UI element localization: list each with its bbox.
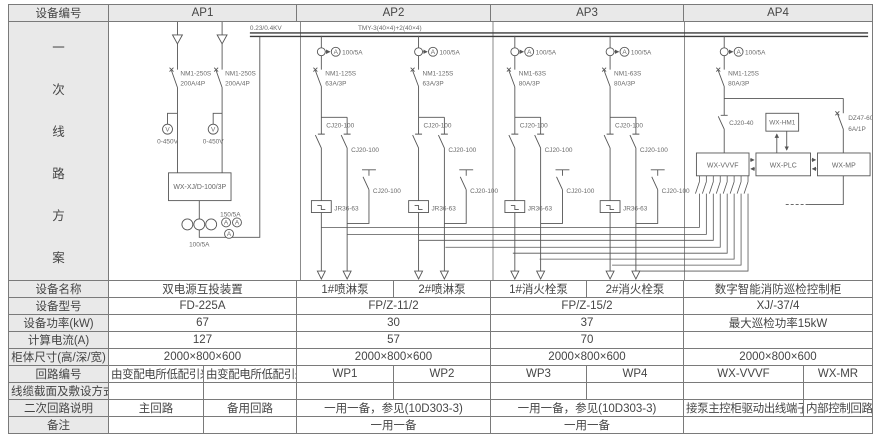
svg-text:0-450V: 0-450V: [203, 139, 224, 146]
scheme-title-vertical: 一 次 线 路 方 案: [11, 22, 106, 280]
svg-text:A: A: [736, 49, 741, 56]
table-cell: [684, 417, 873, 434]
vvvf-output-line: [347, 176, 706, 235]
table-cell: 备用回路: [204, 400, 297, 417]
svg-text:CJ20-100: CJ20-100: [326, 123, 354, 130]
busbar-voltage-label: 0.23/0.4KV: [250, 25, 283, 32]
table-cell: 2000×800×600: [297, 349, 491, 366]
row-label-current: 计算电流(A): [9, 332, 109, 349]
pump-branches: A 100/5A NM1-125S 63A/3P CJ20-100 CJ20-1…: [311, 36, 690, 279]
svg-text:100/5A: 100/5A: [439, 49, 460, 56]
table-row: 二次回路说明 主回路 备用回路 一用一备，参见(10D303-3) 一用一备，参…: [9, 400, 873, 417]
table-cell: XJ/-37/4: [684, 298, 873, 315]
svg-text:NM1-63S: NM1-63S: [519, 71, 546, 78]
table-cell: [587, 383, 684, 400]
svg-text:V: V: [165, 127, 170, 134]
ct-icon: [415, 48, 423, 56]
svg-text:100/5A: 100/5A: [745, 49, 766, 56]
svg-text:80A/3P: 80A/3P: [519, 81, 540, 88]
vvvf-output-line: [321, 176, 699, 228]
table-cell: 1#喷淋泵: [297, 281, 394, 298]
svg-text:NM1-250S: NM1-250S: [180, 71, 211, 78]
table-row: 设备名称 双电源互投装置 1#喷淋泵 2#喷淋泵 1#消火栓泵 2#消火栓泵 数…: [9, 281, 873, 298]
table-cell: WP2: [394, 366, 491, 383]
table-cell: 127: [109, 332, 297, 349]
svg-text:200A/4P: 200A/4P: [180, 81, 205, 88]
svg-text:CJ20-100: CJ20-100: [351, 147, 379, 154]
one-line-diagram: 0.23/0.4KV TMY-3(40×4)+2(40×4) NM1-250S …: [111, 22, 873, 280]
table-cell: 一用一备: [297, 417, 491, 434]
ap4-circuit: A 100/5A NM1-125S 80A/3P CJ20-40 DZ47-60…: [696, 36, 872, 205]
table-cell: FP/Z-15/2: [491, 298, 684, 315]
pump-branch: A 100/5A NM1-125S 63A/3P CJ20-100 CJ20-1…: [311, 36, 401, 279]
table-row: 备注 一用一备 一用一备: [9, 417, 873, 434]
motor-arrow-icon: [415, 271, 423, 279]
svg-text:NM1-125S: NM1-125S: [728, 71, 759, 78]
table-cell: 接泵主控柜驱动出线端子: [684, 400, 804, 417]
table-cell: 一用一备，参见(10D303-3): [297, 400, 491, 417]
table-row: 设备功率(kW) 67 30 37 最大巡检功率15kW: [9, 315, 873, 332]
svg-text:CJ20-100: CJ20-100: [448, 147, 476, 154]
svg-text:CJ20-100: CJ20-100: [470, 188, 498, 195]
svg-text:WX-PLC: WX-PLC: [770, 162, 797, 169]
table-cell: WP4: [587, 366, 684, 383]
svg-text:DZ47-60: DZ47-60: [848, 115, 872, 122]
table-cell: 37: [491, 315, 684, 332]
svg-text:WX-VVVF: WX-VVVF: [707, 162, 739, 169]
vvvf-output-line: [419, 176, 714, 241]
table-cell: 57: [297, 332, 491, 349]
svg-text:WX-MP: WX-MP: [832, 162, 856, 169]
svg-text:CJ20-100: CJ20-100: [545, 147, 573, 154]
svg-text:JR36-63: JR36-63: [623, 206, 648, 213]
table-row: 设备型号 FD-225A FP/Z-11/2 FP/Z-15/2 XJ/-37/…: [9, 298, 873, 315]
svg-text:63A/3P: 63A/3P: [325, 81, 346, 88]
svg-text:NM1-63S: NM1-63S: [614, 71, 641, 78]
table-cell: WX-VVVF: [684, 366, 804, 383]
svg-text:A: A: [224, 220, 229, 227]
table-cell: 由变配电所低配引来: [109, 366, 204, 383]
table-cell: [109, 417, 204, 434]
svg-text:100/5A: 100/5A: [189, 241, 210, 248]
pump-branch: A 100/5A NM1-63S 80A/3P CJ20-100 CJ20-10…: [600, 36, 690, 279]
motor-arrow-icon: [440, 271, 448, 279]
table-cell: 2#喷淋泵: [394, 281, 491, 298]
svg-text:0-450V: 0-450V: [157, 139, 178, 146]
table-cell: [684, 383, 804, 400]
table-cell: [804, 383, 873, 400]
column-header-ap4: AP4: [684, 5, 873, 22]
row-label-cable-section: 线缆截面及敷设方式: [9, 383, 109, 400]
svg-text:80A/3P: 80A/3P: [614, 81, 635, 88]
svg-text:CJ20-100: CJ20-100: [640, 147, 668, 154]
table-row: 计算电流(A) 127 57 70: [9, 332, 873, 349]
ap1-circuit: NM1-250S 200A/4P NM1-250S 200A/4P V 0-45…: [157, 22, 260, 248]
table-cell: 一用一备，参见(10D303-3): [491, 400, 684, 417]
svg-text:80A/3P: 80A/3P: [728, 81, 749, 88]
table-cell: 2#消火栓泵: [587, 281, 684, 298]
row-label-power: 设备功率(kW): [9, 315, 109, 332]
table-cell: [109, 383, 204, 400]
svg-text:NM1-250S: NM1-250S: [225, 71, 256, 78]
ct-icon: [194, 219, 205, 230]
motor-arrow-icon: [537, 271, 545, 279]
svg-text:NM1-125S: NM1-125S: [325, 71, 356, 78]
table-cell: 双电源互投装置: [109, 281, 297, 298]
busbar-type-label: TMY-3(40×4)+2(40×4): [358, 25, 422, 32]
row-label-cabinet-size: 柜体尺寸(高/深/宽): [9, 349, 109, 366]
table-cell: 最大巡检功率15kW: [684, 315, 873, 332]
busbar: 0.23/0.4KV TMY-3(40×4)+2(40×4): [250, 25, 868, 36]
svg-text:200A/4P: 200A/4P: [225, 81, 250, 88]
table-cell: 2000×800×600: [109, 349, 297, 366]
table-row: 线缆截面及敷设方式: [9, 383, 873, 400]
motor-arrow-icon: [511, 271, 519, 279]
table-cell: 内部控制回路: [804, 400, 873, 417]
svg-text:JR36-63: JR36-63: [431, 206, 456, 213]
svg-text:CJ20-100: CJ20-100: [615, 123, 643, 130]
svg-text:CJ20-100: CJ20-100: [424, 123, 452, 130]
row-label-device-name: 设备名称: [9, 281, 109, 298]
table-cell: 1#消火栓泵: [491, 281, 587, 298]
ct-icon: [606, 48, 614, 56]
svg-text:A: A: [334, 49, 339, 56]
svg-text:63A/3P: 63A/3P: [423, 81, 444, 88]
svg-text:A: A: [431, 49, 436, 56]
table-cell: [684, 332, 873, 349]
table-cell: 67: [109, 315, 297, 332]
svg-text:100/5A: 100/5A: [342, 49, 363, 56]
column-header-ap3: AP3: [491, 5, 684, 22]
svg-text:CJ20-40: CJ20-40: [729, 120, 754, 127]
table-cell: 30: [297, 315, 491, 332]
table-cell: [297, 383, 394, 400]
ct-icon: [182, 219, 193, 230]
table-cell: 2000×800×600: [684, 349, 873, 366]
vvvf-output-line: [445, 176, 720, 247]
svg-text:WX-HM1: WX-HM1: [769, 120, 796, 127]
pump-branch: A 100/5A NM1-125S 63A/3P CJ20-100 CJ20-1…: [409, 36, 499, 279]
row-label-secondary-circuit: 二次回路说明: [9, 400, 109, 417]
table-cell: WP1: [297, 366, 394, 383]
table-row: 柜体尺寸(高/深/宽) 2000×800×600 2000×800×600 20…: [9, 349, 873, 366]
table-cell: FD-225A: [109, 298, 297, 315]
svg-text:A: A: [227, 231, 232, 238]
table-cell: 70: [491, 332, 684, 349]
row-label-model: 设备型号: [9, 298, 109, 315]
svg-text:6A/1P: 6A/1P: [848, 126, 866, 133]
svg-text:CJ20-100: CJ20-100: [520, 123, 548, 130]
svg-text:CJ20-100: CJ20-100: [662, 188, 690, 195]
svg-text:JR36-63: JR36-63: [528, 206, 553, 213]
table-cell: 主回路: [109, 400, 204, 417]
scheme-title-cell: 一 次 线 路 方 案: [9, 22, 109, 281]
motor-arrow-icon: [606, 271, 614, 279]
device-number-header: 设备编号: [9, 5, 109, 22]
svg-text:A: A: [527, 49, 532, 56]
svg-text:WX-XJ/D-100/3P: WX-XJ/D-100/3P: [173, 184, 226, 191]
table-cell: [491, 383, 587, 400]
svg-text:NM1-125S: NM1-125S: [423, 71, 454, 78]
spec-table: 设备编号 AP1 AP2 AP3 AP4 一 次 线 路 方 案: [8, 4, 873, 434]
svg-text:CJ20-100: CJ20-100: [566, 188, 594, 195]
svg-text:A: A: [622, 49, 627, 56]
svg-text:A: A: [235, 220, 240, 227]
svg-text:JR36-63: JR36-63: [334, 206, 359, 213]
table-cell: [204, 417, 297, 434]
incoming-arrow-icon: [172, 35, 182, 44]
row-label-remarks: 备注: [9, 417, 109, 434]
table-cell: [394, 383, 491, 400]
table-cell: 数字智能消防巡检控制柜: [684, 281, 873, 298]
header-row: 设备编号 AP1 AP2 AP3 AP4: [9, 5, 873, 22]
svg-text:100/5A: 100/5A: [631, 49, 652, 56]
diagram-cell: 0.23/0.4KV TMY-3(40×4)+2(40×4) NM1-250S …: [109, 22, 873, 281]
table-cell: FP/Z-11/2: [297, 298, 491, 315]
table-row: 回路编号 由变配电所低配引来 由变配电所低配引来 WP1 WP2 WP3 WP4…: [9, 366, 873, 383]
svg-text:100/5A: 100/5A: [536, 49, 557, 56]
column-header-ap2: AP2: [297, 5, 491, 22]
table-cell: [204, 383, 297, 400]
row-label-circuit-number: 回路编号: [9, 366, 109, 383]
table-cell: 由变配电所低配引来: [204, 366, 297, 383]
table-cell: 2000×800×600: [491, 349, 684, 366]
vvvf-output-line: [513, 176, 727, 253]
incoming-arrow-icon: [217, 35, 227, 44]
ct-icon: [720, 48, 728, 56]
ct-icon: [206, 219, 217, 230]
table-cell: 一用一备: [491, 417, 684, 434]
ct-icon: [317, 48, 325, 56]
pump-branch: A 100/5A NM1-63S 80A/3P CJ20-100 CJ20-10…: [505, 36, 595, 279]
motor-arrow-icon: [317, 271, 325, 279]
motor-arrow-icon: [632, 271, 640, 279]
table-cell: WP3: [491, 366, 587, 383]
ct-icon: [511, 48, 519, 56]
svg-text:V: V: [211, 127, 216, 134]
svg-text:150/5A: 150/5A: [220, 211, 241, 218]
svg-text:CJ20-100: CJ20-100: [373, 188, 401, 195]
table-cell: WX-MR: [804, 366, 873, 383]
motor-arrow-icon: [343, 271, 351, 279]
column-header-ap1: AP1: [109, 5, 297, 22]
